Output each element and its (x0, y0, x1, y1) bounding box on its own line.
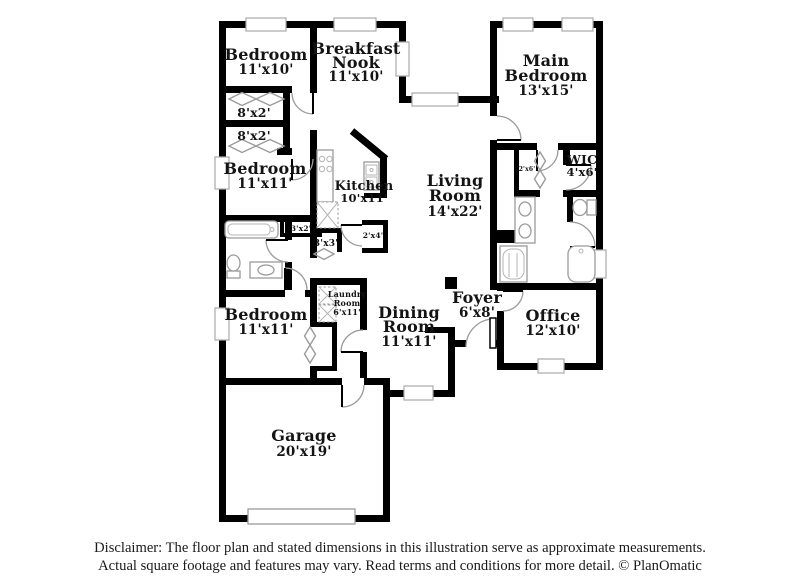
window (503, 18, 533, 31)
toilet-icon (573, 200, 596, 216)
svg-text:20'x19': 20'x19' (276, 444, 331, 460)
stove-icon (317, 150, 333, 202)
svg-text:11'x11': 11'x11' (381, 334, 436, 350)
bathtub-icon (225, 221, 278, 238)
window (246, 18, 286, 31)
floorplan-page: Bedroom 11'x10' Breakfast Nook 11'x10' M… (0, 0, 800, 582)
window (412, 93, 458, 106)
shower-icon (500, 246, 527, 282)
label-closet-3x3: 3'x3' (314, 239, 338, 249)
pantry-icon (317, 202, 338, 228)
window (404, 386, 433, 400)
svg-text:11'x10': 11'x10' (328, 69, 383, 85)
label-breakfast-nook: Breakfast Nook 11'x10' (311, 39, 400, 85)
label-closet-8x2-b: 8'x2' (237, 128, 271, 143)
sink-icon (250, 262, 282, 278)
bifold-closet-2x5 (305, 327, 316, 363)
label-wic: WIC 4'x6' (566, 152, 598, 179)
wall-chase (497, 230, 515, 243)
label-bedroom-top: Bedroom 11'x10' (225, 45, 308, 78)
label-kitchen: Kitchen 10'x11' (335, 179, 394, 205)
disclaimer-line-2: Actual square footage and features may v… (0, 558, 800, 576)
garage-door-icon (248, 509, 355, 524)
disclaimer: Disclaimer: The floor plan and stated di… (0, 540, 800, 575)
svg-text:10'x11': 10'x11' (340, 191, 387, 205)
label-living-room: Living Room 14'x22' (427, 171, 484, 220)
svg-text:11'x11': 11'x11' (238, 322, 293, 338)
label-bedroom-middle: Bedroom 11'x11' (224, 159, 307, 192)
label-dining-room: Dining Room 11'x11' (378, 303, 440, 350)
window (538, 359, 564, 373)
label-closet-2x4: 2'x4' (363, 231, 384, 240)
svg-text:14'x22': 14'x22' (427, 204, 482, 220)
svg-text:13'x15': 13'x15' (518, 83, 573, 99)
svg-text:6'x11': 6'x11' (333, 307, 361, 317)
label-office: Office 12'x10' (525, 306, 580, 339)
label-foyer: Foyer 6'x8' (452, 288, 502, 321)
front-door-icon (490, 318, 496, 348)
window (334, 18, 376, 31)
svg-text:11'x11': 11'x11' (237, 176, 292, 192)
toilet-icon (227, 255, 240, 278)
label-closet-2x6: 2'x6' (519, 166, 536, 173)
bifold-closet-8x2-a (229, 93, 284, 106)
svg-text:6'x8': 6'x8' (459, 305, 495, 321)
double-vanity-icon (515, 197, 535, 243)
label-closet-3x2: 3'x2' (291, 224, 312, 233)
svg-text:Room: Room (429, 186, 481, 205)
svg-text:12'x10': 12'x10' (525, 323, 580, 339)
label-main-bedroom: Main Bedroom 13'x15' (505, 51, 588, 99)
floorplan-drawing: Bedroom 11'x10' Breakfast Nook 11'x10' M… (0, 0, 800, 582)
svg-text:Garage: Garage (271, 426, 336, 445)
disclaimer-line-1: Disclaimer: The floor plan and stated di… (0, 540, 800, 558)
svg-text:11'x10': 11'x10' (238, 62, 293, 78)
bathtub-icon (568, 246, 595, 282)
label-garage: Garage 20'x19' (271, 426, 336, 460)
label-bedroom-lower: Bedroom 11'x11' (225, 305, 308, 338)
window (562, 18, 593, 31)
label-closet-8x2-a: 8'x2' (237, 105, 271, 120)
svg-text:4'x6': 4'x6' (567, 165, 598, 179)
